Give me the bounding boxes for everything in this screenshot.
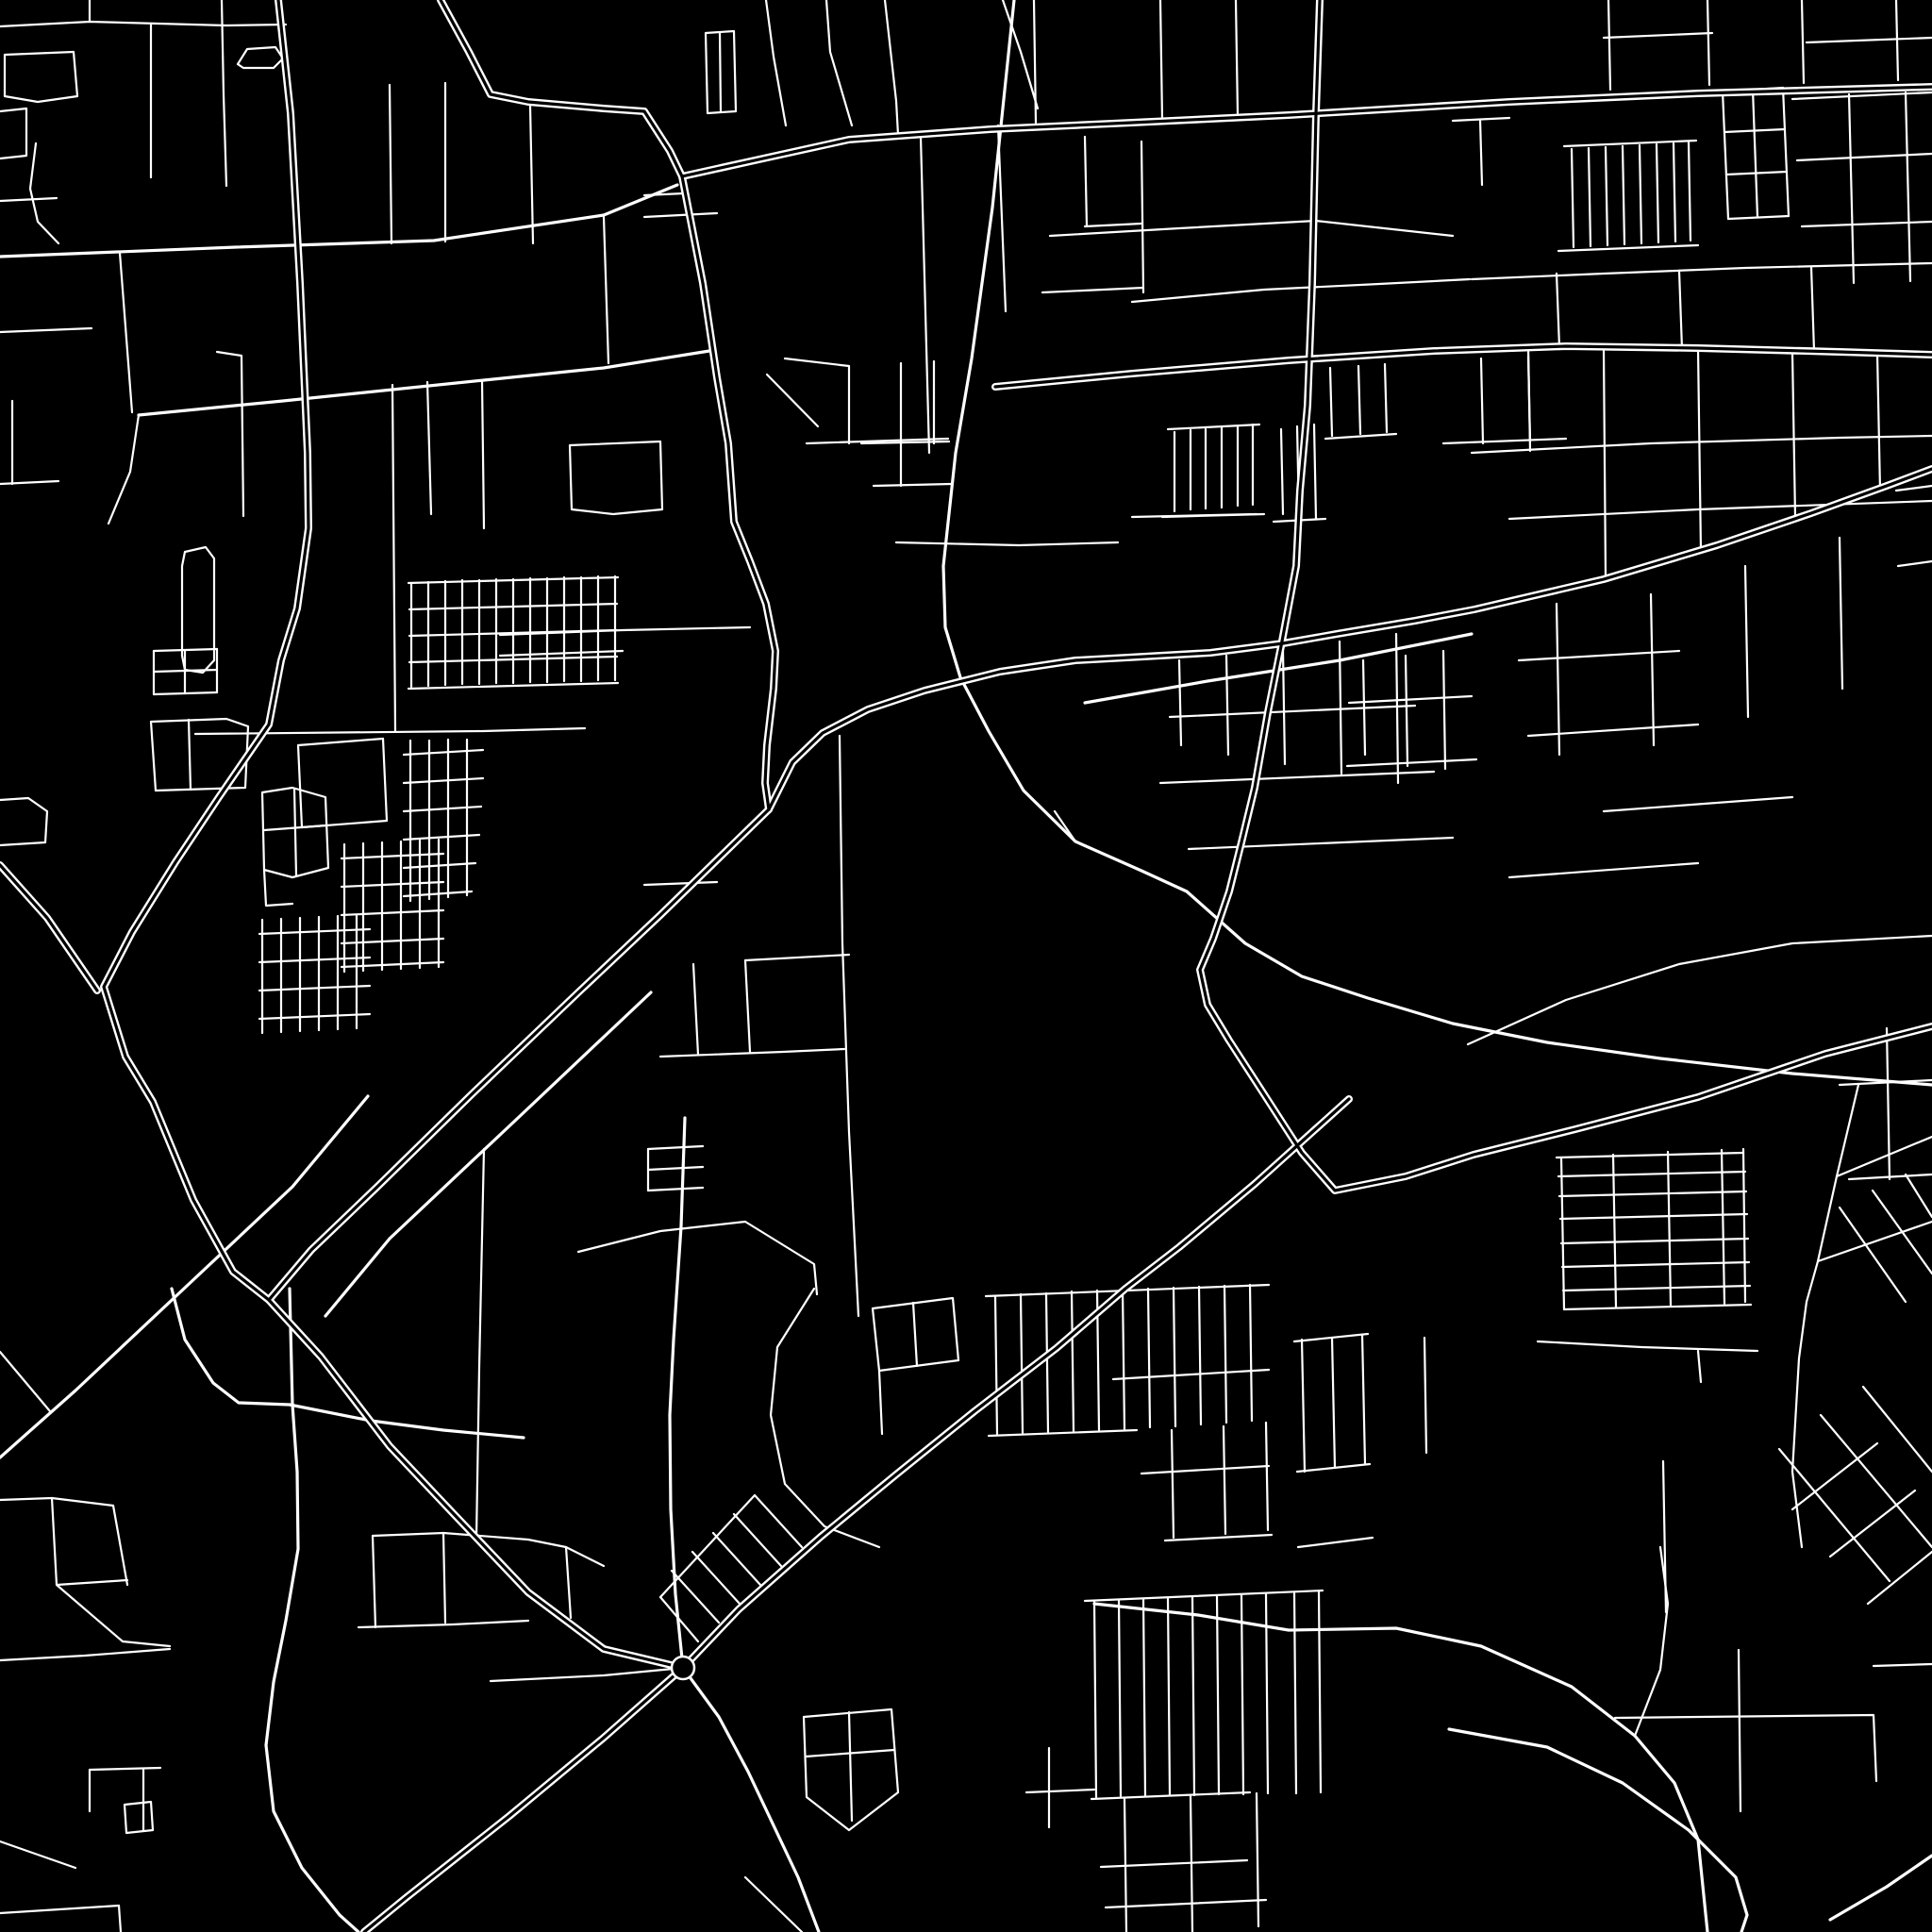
road-network-map[interactable]: [0, 0, 1932, 1932]
road-segment: [720, 32, 721, 112]
junction-roundabout: [672, 1657, 694, 1679]
map-background: [0, 0, 1932, 1932]
map-canvas[interactable]: [0, 0, 1932, 1932]
junction-roundabout-layer: [672, 1657, 694, 1679]
